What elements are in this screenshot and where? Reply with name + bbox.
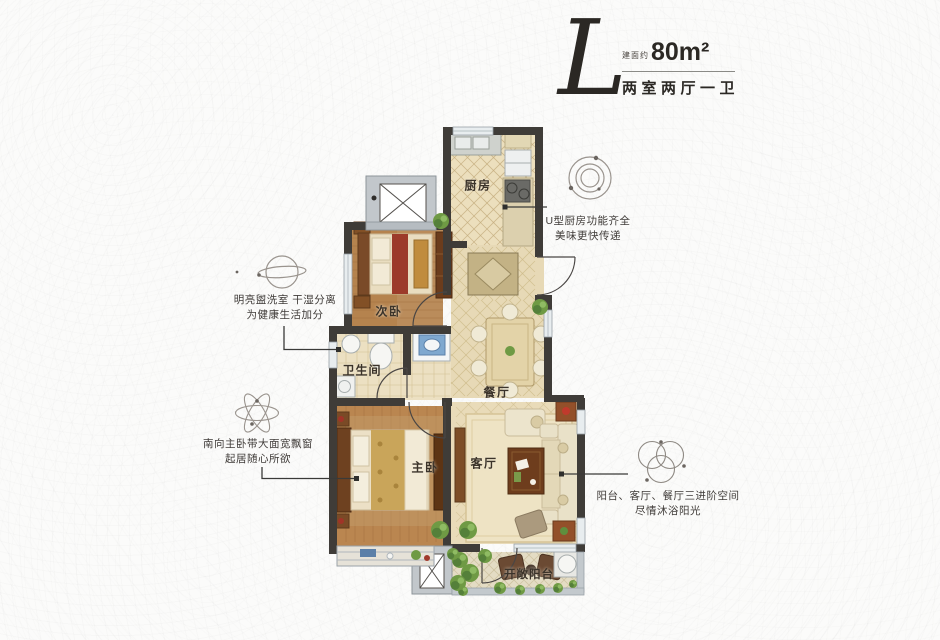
elevator-dot-top bbox=[372, 196, 377, 201]
master-bed-quilt bbox=[371, 430, 405, 510]
kitchen-rings-icon bbox=[569, 156, 611, 199]
coffee-table-plant bbox=[514, 472, 521, 482]
side-table-plant bbox=[560, 527, 568, 535]
quilt-dot bbox=[378, 470, 383, 475]
plant bbox=[540, 301, 546, 307]
layout-text: 两室两厅一卫 bbox=[622, 77, 739, 98]
wall bbox=[576, 544, 585, 552]
kitchen-leader-dot bbox=[503, 205, 508, 210]
floorplan-graphic bbox=[0, 0, 940, 640]
quilt-dot bbox=[394, 456, 399, 461]
plant bbox=[463, 588, 467, 592]
balcony-rail-right bbox=[577, 552, 584, 592]
sunlight-note: 阳台、客厅、餐厅三进阶空间 尽情沐浴阳光 bbox=[597, 489, 740, 519]
sofa-pillow-1 bbox=[558, 443, 568, 453]
sofa-arm-top bbox=[540, 424, 558, 438]
washing-machine bbox=[334, 376, 355, 397]
master-lamp-top bbox=[338, 416, 344, 422]
wall bbox=[442, 398, 452, 406]
wall bbox=[329, 334, 337, 342]
dining-chair-1 bbox=[471, 326, 487, 342]
dining-chair-5 bbox=[502, 304, 518, 320]
sunlight-leader-dot bbox=[559, 472, 564, 477]
plant bbox=[520, 587, 524, 591]
quilt-dot bbox=[378, 498, 383, 503]
plant bbox=[500, 584, 505, 589]
plant bbox=[540, 586, 544, 590]
plant bbox=[573, 581, 576, 584]
kitchen-sink-basin-right bbox=[473, 137, 489, 149]
wall-kitchen-left bbox=[443, 127, 451, 295]
area-prefix: 建面约 bbox=[622, 50, 649, 61]
wall bbox=[577, 398, 585, 410]
master-bed-headboard bbox=[337, 428, 351, 512]
master-note-line2: 起居随心所欲 bbox=[203, 452, 313, 467]
room-label-second-bedroom: 次卧 bbox=[375, 303, 402, 320]
floorplan-page: L 建面约 80m² 两室两厅一卫 厨房 次卧 卫生间 餐厅 主卧 客厅 开敞阳… bbox=[0, 0, 940, 640]
plan-letter: L bbox=[558, 6, 627, 110]
master-pillow-1 bbox=[353, 436, 369, 466]
dining-centerpiece bbox=[505, 346, 515, 356]
second-bed-pillow-1 bbox=[372, 238, 390, 260]
living-window-top bbox=[577, 410, 585, 434]
area-value: 80m² bbox=[651, 40, 709, 65]
kitchen-note-line1: U型厨房功能齐全 bbox=[545, 214, 630, 229]
wall-dining-right bbox=[544, 337, 552, 398]
washroom-orbit-icon bbox=[236, 256, 307, 288]
second-bed-runner bbox=[392, 234, 408, 294]
coffee-table bbox=[508, 448, 544, 494]
room-label-kitchen: 厨房 bbox=[464, 177, 491, 194]
sofa-pillow-2 bbox=[558, 495, 568, 505]
plant bbox=[460, 554, 466, 560]
bay-window-pot bbox=[424, 555, 430, 561]
toilet-tank bbox=[368, 333, 394, 343]
second-bed-pillow-2 bbox=[372, 263, 390, 285]
sunlight-circles-icon bbox=[639, 440, 686, 482]
header-divider bbox=[622, 71, 735, 72]
bay-window-plant bbox=[411, 550, 421, 560]
second-bed-throw bbox=[414, 240, 428, 288]
area-row: 建面约 80m² bbox=[622, 40, 709, 65]
room-label-living: 客厅 bbox=[470, 455, 497, 472]
wall-living-right bbox=[577, 434, 585, 518]
room-label-balcony: 开敞阳台 bbox=[504, 566, 554, 582]
side-table-flower bbox=[562, 407, 570, 415]
plant bbox=[441, 215, 447, 221]
plant bbox=[468, 524, 475, 531]
elevator-sill bbox=[366, 222, 436, 230]
second-bedroom-nightstand-bottom bbox=[354, 296, 370, 308]
kitchen-shelf bbox=[505, 133, 531, 148]
wall-bathroom-top bbox=[329, 326, 451, 334]
sunlight-note-line1: 阳台、客厅、餐厅三进阶空间 bbox=[597, 489, 740, 504]
plant bbox=[558, 585, 562, 589]
master-lamp-bottom bbox=[338, 518, 344, 524]
sunlight-note-line2: 尽情沐浴阳光 bbox=[597, 504, 740, 519]
vanity-basin bbox=[424, 339, 440, 351]
master-note: 南向主卧带大面宽飘窗 起居随心所欲 bbox=[203, 437, 313, 467]
kitchen-note: U型厨房功能齐全 美味更快传递 bbox=[545, 214, 630, 244]
room-label-master-bedroom: 主卧 bbox=[411, 459, 438, 476]
wall-master-left bbox=[329, 406, 337, 546]
plant bbox=[470, 567, 477, 574]
washroom-note-line2: 为健康生活加分 bbox=[234, 308, 336, 323]
coffee-table-cup bbox=[530, 479, 536, 485]
wall-kitchen-bottom-stub bbox=[443, 241, 467, 248]
master-note-line1: 南向主卧带大面宽飘窗 bbox=[203, 437, 313, 452]
washroom-note-line1: 明亮盥洗室 干湿分离 bbox=[234, 293, 336, 308]
master-leader-dot bbox=[354, 476, 359, 481]
tv-cabinet bbox=[455, 428, 465, 502]
plant bbox=[440, 524, 447, 531]
bay-window-books bbox=[360, 549, 376, 557]
kitchen-note-line2: 美味更快传递 bbox=[545, 229, 630, 244]
bathroom-sink bbox=[342, 335, 360, 353]
quilt-dot bbox=[394, 484, 399, 489]
kitchen-sink-basin-left bbox=[455, 137, 471, 149]
wall bbox=[344, 222, 352, 254]
plant bbox=[453, 550, 458, 555]
room-label-bathroom: 卫生间 bbox=[342, 362, 381, 379]
entry-threshold bbox=[535, 257, 544, 295]
quilt-dot bbox=[378, 442, 383, 447]
second-bed-headboard bbox=[358, 233, 370, 295]
plant bbox=[458, 577, 464, 583]
wall bbox=[344, 314, 352, 328]
bathroom-window bbox=[329, 342, 337, 368]
room-label-dining: 餐厅 bbox=[483, 384, 510, 401]
bay-window-cup bbox=[387, 553, 393, 559]
washroom-note: 明亮盥洗室 干湿分离 为健康生活加分 bbox=[234, 293, 336, 323]
dining-chair-2 bbox=[471, 360, 487, 376]
master-atom-icon bbox=[236, 391, 279, 436]
living-window-bottom bbox=[577, 518, 585, 544]
plant bbox=[485, 551, 491, 557]
wall-kitchen-right bbox=[535, 127, 543, 257]
balcony-drum-top bbox=[558, 555, 576, 573]
washroom-leader-dot bbox=[336, 347, 341, 352]
wall-master-top-left bbox=[329, 398, 405, 406]
